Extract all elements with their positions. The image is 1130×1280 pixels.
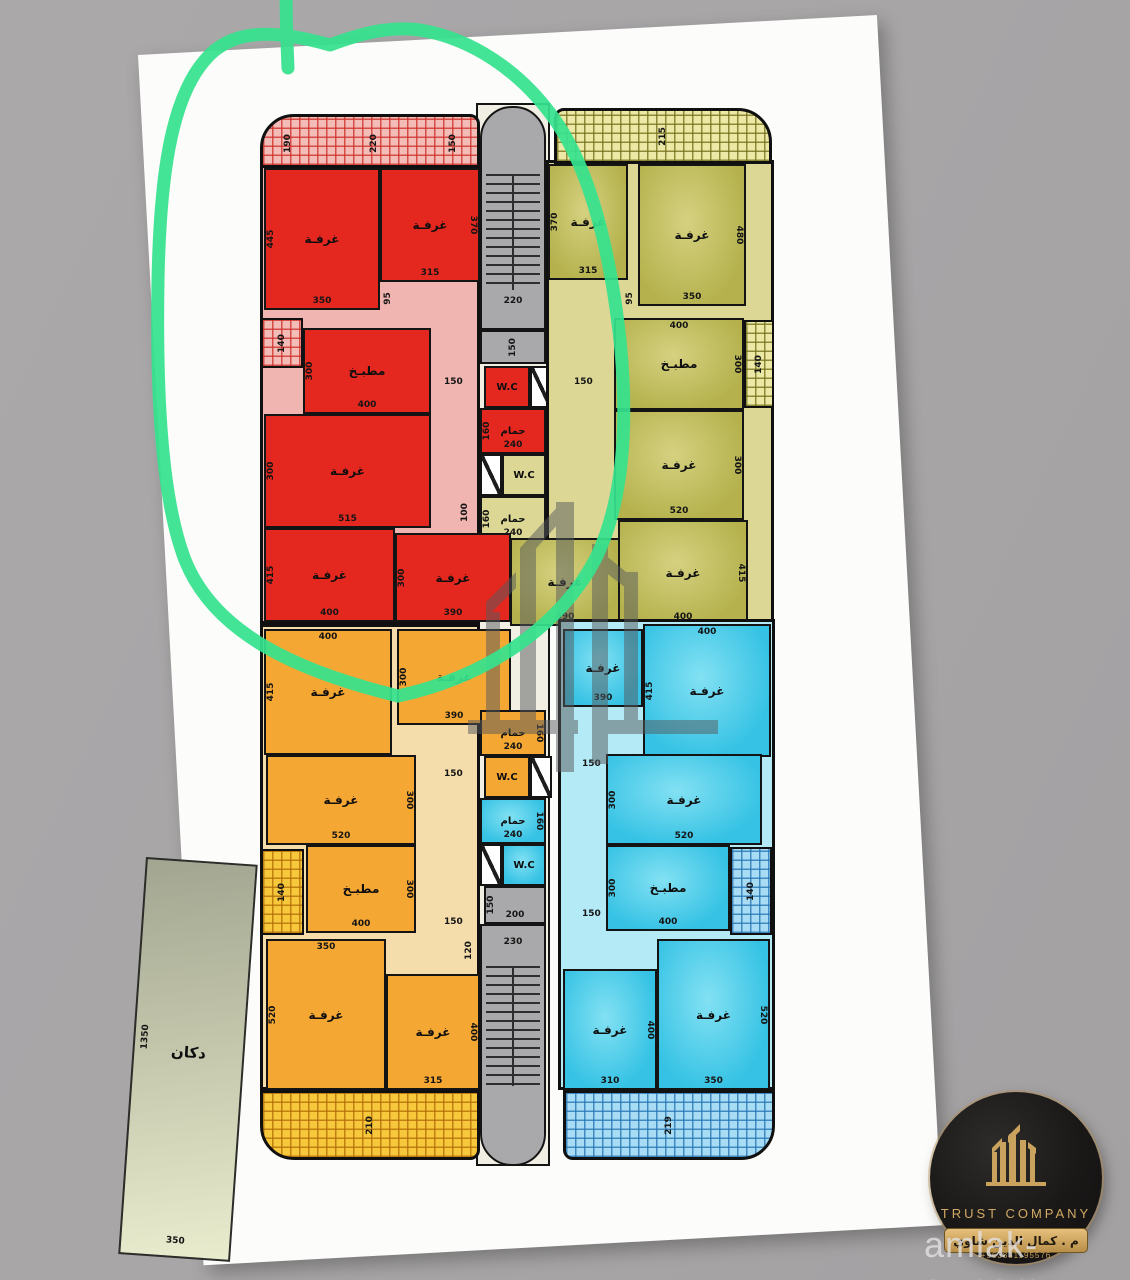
stair-dim: 220 [482, 297, 544, 306]
dim: 150 [444, 918, 463, 927]
room-red-2: غرفـة 370 315 [380, 168, 480, 282]
room-red-3: غرفـة 300 515 [264, 414, 431, 528]
site-watermark: amlak-sy.com [924, 1224, 1130, 1280]
stair-tower-top: 220 [480, 106, 546, 330]
room-red-4: غرفـة 415 400 [264, 528, 395, 622]
balcony-red-side: 140 [261, 318, 303, 368]
stair-tower-bottom: 230 [480, 924, 546, 1166]
photo-of-floor-plan: دكان 1350 350 220 15 [0, 0, 1130, 1280]
room-orange-3: غرفـة 300 520 [266, 755, 416, 845]
dim: 150 [574, 378, 593, 387]
stair-landing-top: 150 [480, 330, 546, 364]
dim: 95 [626, 292, 635, 305]
dim: 150 [582, 910, 601, 919]
balcony-olive: 215 [554, 108, 772, 164]
dim: 120 [465, 941, 474, 960]
dim: 150 [444, 770, 463, 779]
stair-divider [512, 174, 514, 290]
balcony-orange-side: 140 [261, 849, 304, 935]
balcony-red: 190 220 150 [260, 114, 480, 168]
shop-width-dim: 350 [121, 1233, 229, 1250]
room-olive-1: غرفـة 370 315 [548, 164, 628, 280]
bath-red: حمام 160 240 [480, 408, 546, 454]
stair-landing-bottom: 150 200 [484, 886, 546, 924]
kitchen-orange: مطبـخ 300 400 [306, 845, 416, 933]
shop-label: دكان [134, 1040, 243, 1065]
room-cyan-5: غرفـة 520 350 [657, 939, 770, 1090]
room-orange-5: غرفـة 400 315 [386, 974, 480, 1090]
kitchen-cyan: مطبـخ 300 400 [606, 845, 730, 931]
wc-red: W.C [484, 366, 530, 408]
wc-cyan: W.C [502, 844, 546, 886]
kitchen-olive: مطبـخ 400 300 [614, 318, 744, 410]
balcony-cyan: 219 [563, 1090, 775, 1160]
room-olive-2: غرفـة 480 350 [638, 164, 746, 306]
building-watermark [468, 452, 718, 772]
company-name: TRUST COMPANY [930, 1206, 1102, 1221]
dim: 95 [384, 292, 393, 305]
kitchen-red: مطبـخ 300 400 [303, 328, 431, 414]
room-orange-4: غرفـة 350 520 [266, 939, 386, 1090]
bath-cyan: حمام 160 240 [480, 798, 546, 844]
dim: 150 [444, 378, 463, 387]
balcony-cyan-side: 140 [730, 847, 772, 935]
door-hatch [480, 844, 502, 886]
room-red-1: غرفـة 445 350 [264, 168, 380, 310]
balcony-olive-side: 140 [744, 320, 774, 408]
landing-dim: 150 [508, 338, 517, 357]
gold-building-icon [984, 1118, 1048, 1188]
balcony-orange: 210 [260, 1090, 480, 1160]
stair-divider [512, 966, 514, 1086]
shop-depth-dim: 1350 [141, 1024, 152, 1050]
room-cyan-4: غرفـة 400 310 [563, 969, 657, 1090]
room-orange-1: غرفـة 400 415 [264, 629, 392, 755]
